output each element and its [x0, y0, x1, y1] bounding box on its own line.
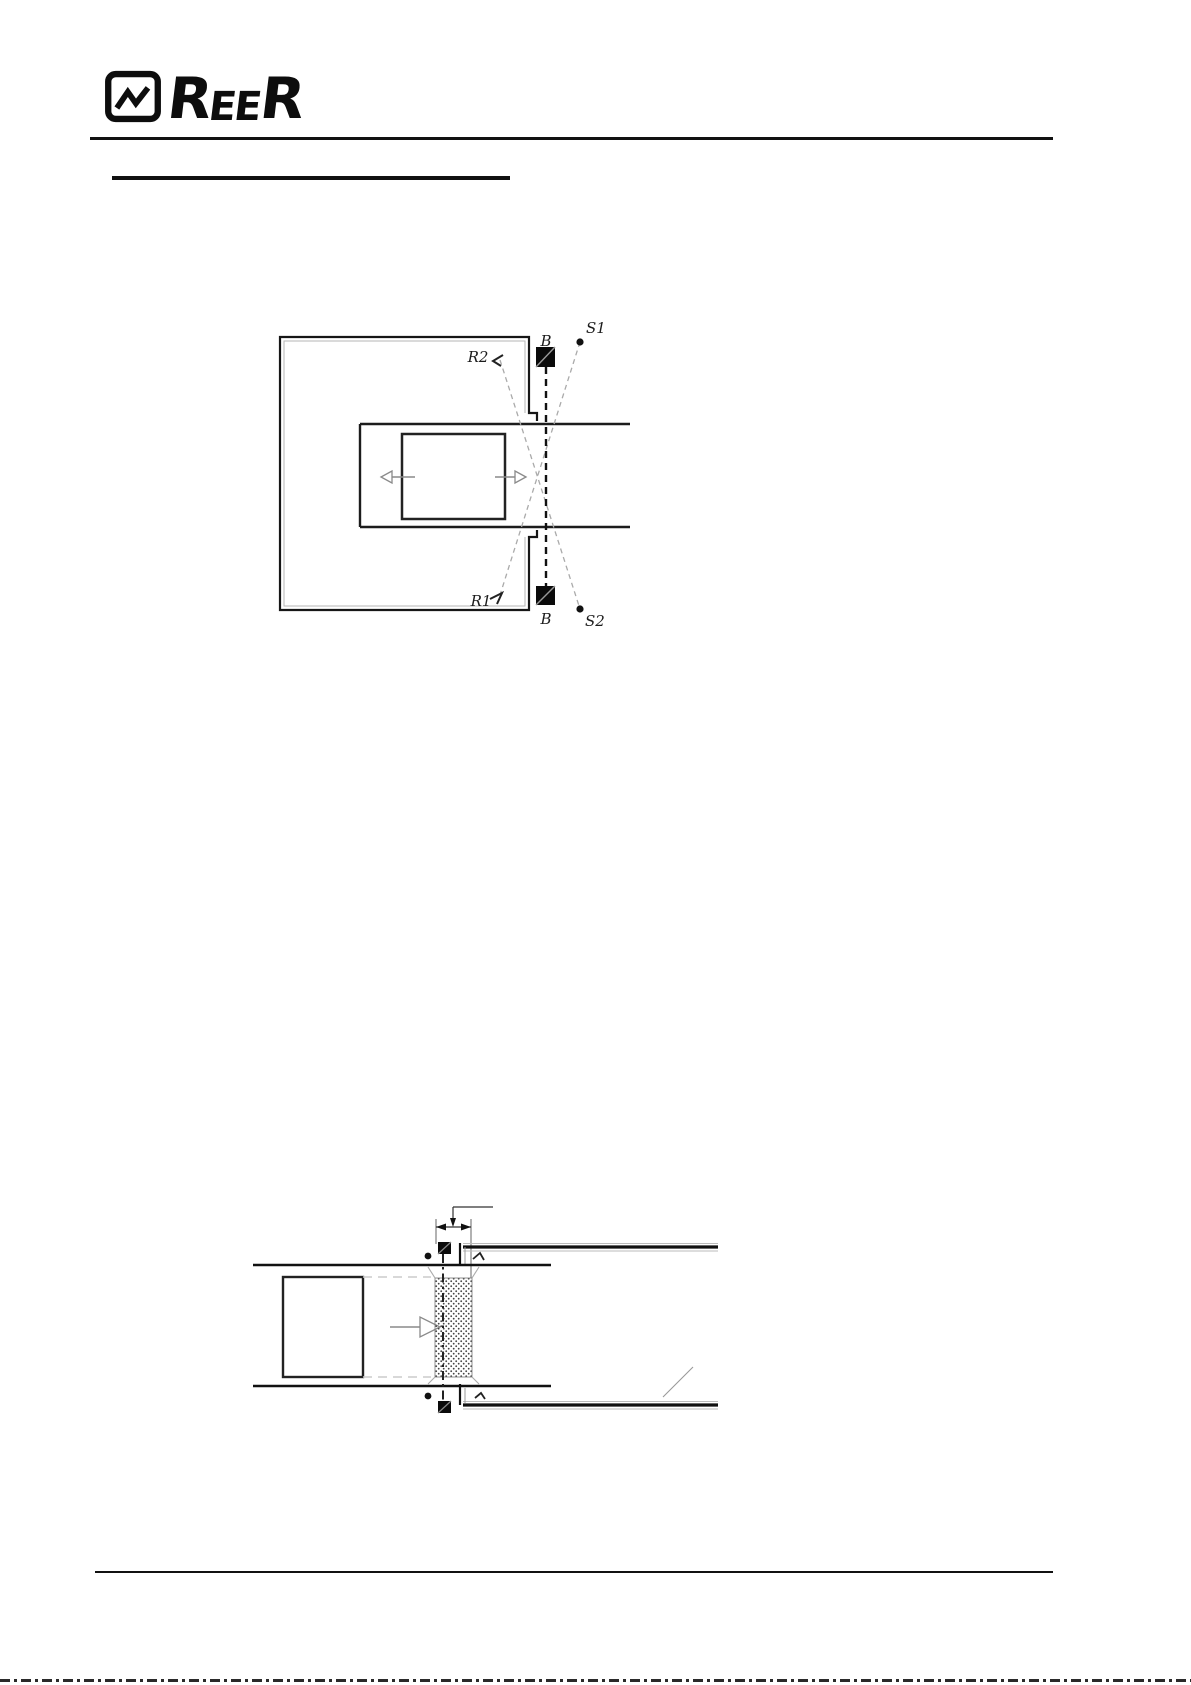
- logo-letter: R: [258, 77, 306, 123]
- reer-logo-text: R E E R: [165, 77, 305, 123]
- tick-top: [473, 1253, 484, 1260]
- curtain-unit-top: [438, 1242, 451, 1254]
- detection-zone-band: [428, 1267, 479, 1384]
- label-s2: S2: [585, 612, 605, 630]
- diagram-crossed-muting-beams: R2 B S1 R1 B S2: [265, 315, 645, 645]
- curtain-unit-bottom: [438, 1401, 451, 1413]
- sensor-dot-s2: [576, 605, 583, 612]
- muting-beam-s1-r1: [500, 342, 580, 595]
- tick-bottom: [475, 1393, 485, 1399]
- guard-fence-top: [460, 1243, 718, 1265]
- muting-sensor-dot-bottom: [425, 1393, 432, 1400]
- arrow-right: [390, 1317, 440, 1337]
- header-rule: [90, 137, 1053, 140]
- sensor-dot-s1: [576, 338, 583, 345]
- label-b-bottom: B: [539, 610, 551, 628]
- fence-leader-line: [663, 1367, 693, 1397]
- diagram-package-through-curtain: [235, 1190, 735, 1425]
- label-r2: R2: [467, 348, 489, 366]
- label-s1: S1: [586, 319, 606, 337]
- muting-beam-s2-r2: [500, 360, 580, 609]
- label-r1: R1: [470, 592, 492, 610]
- heading-underline: [112, 176, 510, 180]
- package-box: [402, 434, 505, 519]
- tick-r1: [490, 593, 502, 604]
- light-curtain-unit-top: [536, 347, 555, 367]
- logo-letter: R: [165, 77, 213, 123]
- label-b-top: B: [539, 332, 551, 350]
- reer-pulse-icon: [104, 70, 162, 123]
- light-curtain-unit-bottom: [536, 586, 555, 605]
- footer-rule: [95, 1571, 1053, 1573]
- guard-fence-bottom: [460, 1384, 718, 1409]
- muting-sensor-dot-top: [425, 1253, 432, 1260]
- manual-page: R E E R: [0, 0, 1191, 1685]
- reer-logo: R E E R: [104, 70, 302, 123]
- page-cut-line: [0, 1679, 1191, 1682]
- package-box: [283, 1277, 363, 1377]
